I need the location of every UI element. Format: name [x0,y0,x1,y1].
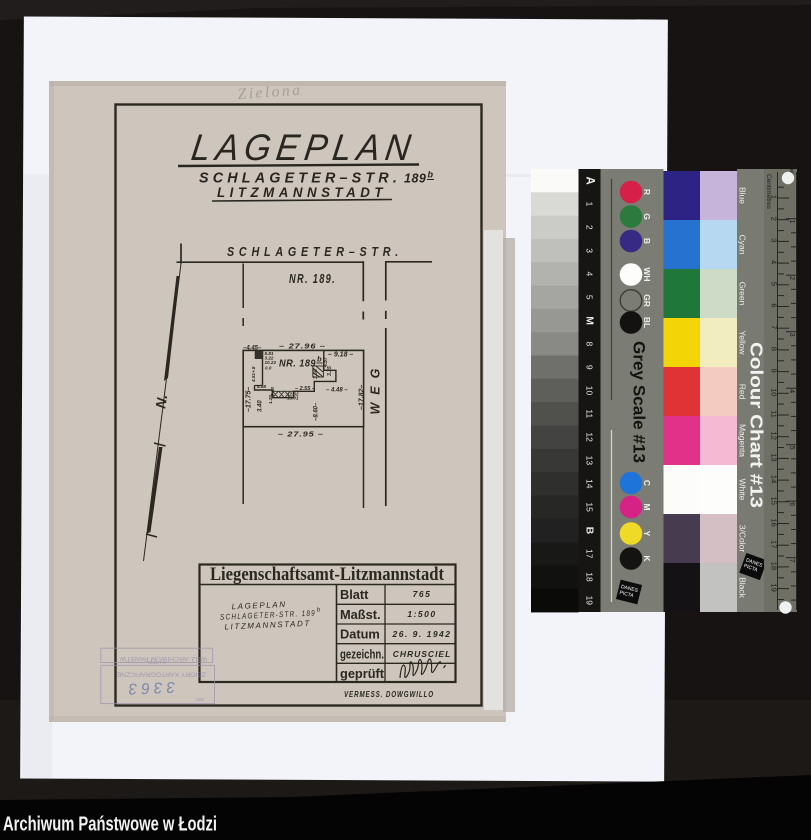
svg-text:–4.45–: –4.45– [243,346,262,352]
svg-text:1: 1 [788,220,795,224]
svg-text:13: 13 [585,456,595,466]
svg-text:8.58: 8.58 [257,384,266,389]
svg-text:b: b [317,607,322,613]
svg-text:SCHLAGETER–STR.: SCHLAGETER–STR. [227,245,403,259]
svg-text:19: 19 [770,583,779,591]
svg-text:– 9.18 –: – 9.18 – [328,352,353,359]
svg-text:Blatt: Blatt [340,587,369,602]
svg-text:14: 14 [770,475,779,483]
svg-text:LAGEPLAN: LAGEPLAN [189,126,419,168]
svg-text:White: White [738,479,748,501]
svg-text:Blue: Blue [738,187,748,204]
svg-text:Maßst.: Maßst. [340,607,381,622]
svg-text:b: b [317,355,322,364]
svg-text:WEG: WEG [369,361,383,415]
svg-text:Black: Black [738,577,748,599]
svg-text:18: 18 [770,562,779,570]
svg-text:17: 17 [585,549,595,559]
svg-text:10: 10 [585,386,595,396]
svg-text:von: von [196,696,204,702]
svg-text:16: 16 [770,518,779,526]
svg-text:0.0: 0.0 [265,366,272,371]
svg-text:–17.82–: –17.82– [359,385,366,410]
svg-text:NR. 189: NR. 189 [279,359,316,370]
svg-text:189: 189 [404,172,426,186]
svg-text:– 27.95 –: – 27.95 – [278,430,324,439]
svg-text:5: 5 [788,446,795,450]
svg-text:3.66: 3.66 [313,369,319,379]
svg-text:geprüft: geprüft [340,666,385,681]
svg-text:15: 15 [770,497,779,505]
svg-text:–8.60–: –8.60– [314,402,320,421]
svg-text:8: 8 [770,347,779,351]
svg-text:1:500: 1:500 [407,609,436,619]
svg-text:Y: Y [642,531,652,537]
svg-text:7: 7 [788,559,795,563]
svg-text:2: 2 [585,225,595,230]
svg-text:1.20: 1.20 [268,395,273,404]
svg-text:Centimetres: Centimetres [765,174,772,210]
svg-text:3/Color: 3/Color [738,525,748,553]
svg-text:CHRUSCIEL: CHRUSCIEL [393,649,452,659]
svg-text:18: 18 [585,572,595,582]
svg-text:4: 4 [788,389,795,393]
svg-text:9: 9 [585,365,595,370]
svg-text:17: 17 [770,540,779,548]
svg-text:– 27.96 –: – 27.96 – [279,342,326,351]
svg-text:3363: 3363 [124,678,175,697]
svg-text:b: b [428,170,434,180]
svg-text:Archiwum Państwowe w Łodzi: Archiwum Państwowe w Łodzi [3,814,217,836]
svg-text:G: G [642,213,652,220]
svg-text:A: A [584,177,596,185]
svg-text:B: B [642,238,652,244]
svg-text:ZBIORY KARTOGRAFICZNE: ZBIORY KARTOGRAFICZNE [116,671,206,678]
svg-text:B: B [584,527,596,535]
svg-text:GR: GR [642,294,652,307]
svg-text:26. 9. 1942: 26. 9. 1942 [391,629,451,639]
svg-text:M: M [642,503,652,510]
svg-text:Magenta: Magenta [738,424,748,457]
svg-text:5: 5 [585,295,595,300]
svg-text:15: 15 [585,502,595,512]
svg-text:6: 6 [788,502,795,506]
svg-text:3: 3 [585,248,595,253]
svg-text:14: 14 [585,479,595,489]
svg-text:WH: WH [642,267,652,281]
svg-text:13.01: 13.01 [287,396,299,401]
svg-text:12: 12 [585,432,595,442]
svg-text:Grey Scale #13: Grey Scale #13 [630,341,648,463]
svg-text:4.51+.8: 4.51+.8 [251,366,256,383]
svg-text:BL: BL [642,317,652,328]
svg-text:8: 8 [585,342,595,347]
svg-text:–17.75–: –17.75– [246,387,253,412]
svg-text:Yellow: Yellow [738,330,748,355]
svg-text:N.: N. [152,393,170,410]
svg-text:gezeichn.: gezeichn. [340,647,384,662]
svg-text:Cyan: Cyan [738,235,748,255]
svg-text:13: 13 [770,453,779,461]
svg-text:Datum: Datum [340,627,380,642]
svg-text:C: C [642,480,652,486]
svg-text:10: 10 [770,388,779,396]
svg-text:7: 7 [770,325,779,329]
svg-text:12: 12 [770,432,779,440]
svg-text:K: K [642,555,652,562]
svg-text:10.22: 10.22 [265,360,277,365]
svg-text:11: 11 [585,409,595,418]
svg-text:NR. 189.: NR. 189. [289,272,336,286]
svg-text:w ŁODZI: w ŁODZI [148,660,166,665]
svg-text:3: 3 [788,333,795,337]
svg-text:Green: Green [738,282,748,306]
svg-text:11: 11 [770,410,779,418]
svg-text:Liegenschaftsamt-Litzmannstadt: Liegenschaftsamt-Litzmannstadt [210,564,445,585]
svg-text:4: 4 [770,260,779,264]
svg-text:VERMESS. DOWGWILLO: VERMESS. DOWGWILLO [344,689,434,699]
svg-text:3.40: 3.40 [258,400,264,412]
svg-text:5: 5 [770,282,779,286]
svg-text:2: 2 [788,276,795,280]
svg-text:2: 2 [770,217,779,221]
svg-text:Red: Red [738,384,748,400]
svg-text:765: 765 [413,589,432,599]
svg-text:6: 6 [770,303,779,307]
svg-text:4: 4 [585,272,595,277]
svg-text:Colour Chart #13: Colour Chart #13 [747,342,767,508]
svg-text:1: 1 [585,202,595,207]
svg-text:M: M [584,316,596,325]
svg-text:LITZMANNSTADT: LITZMANNSTADT [217,185,387,200]
svg-text:1: 1 [770,195,779,199]
svg-text:9: 9 [770,369,779,373]
svg-text:– 4.48 –: – 4.48 – [326,388,348,394]
svg-text:3.35: 3.35 [327,366,333,376]
svg-text:R: R [642,189,652,195]
svg-text:19: 19 [585,596,595,606]
svg-text:3: 3 [770,238,779,242]
